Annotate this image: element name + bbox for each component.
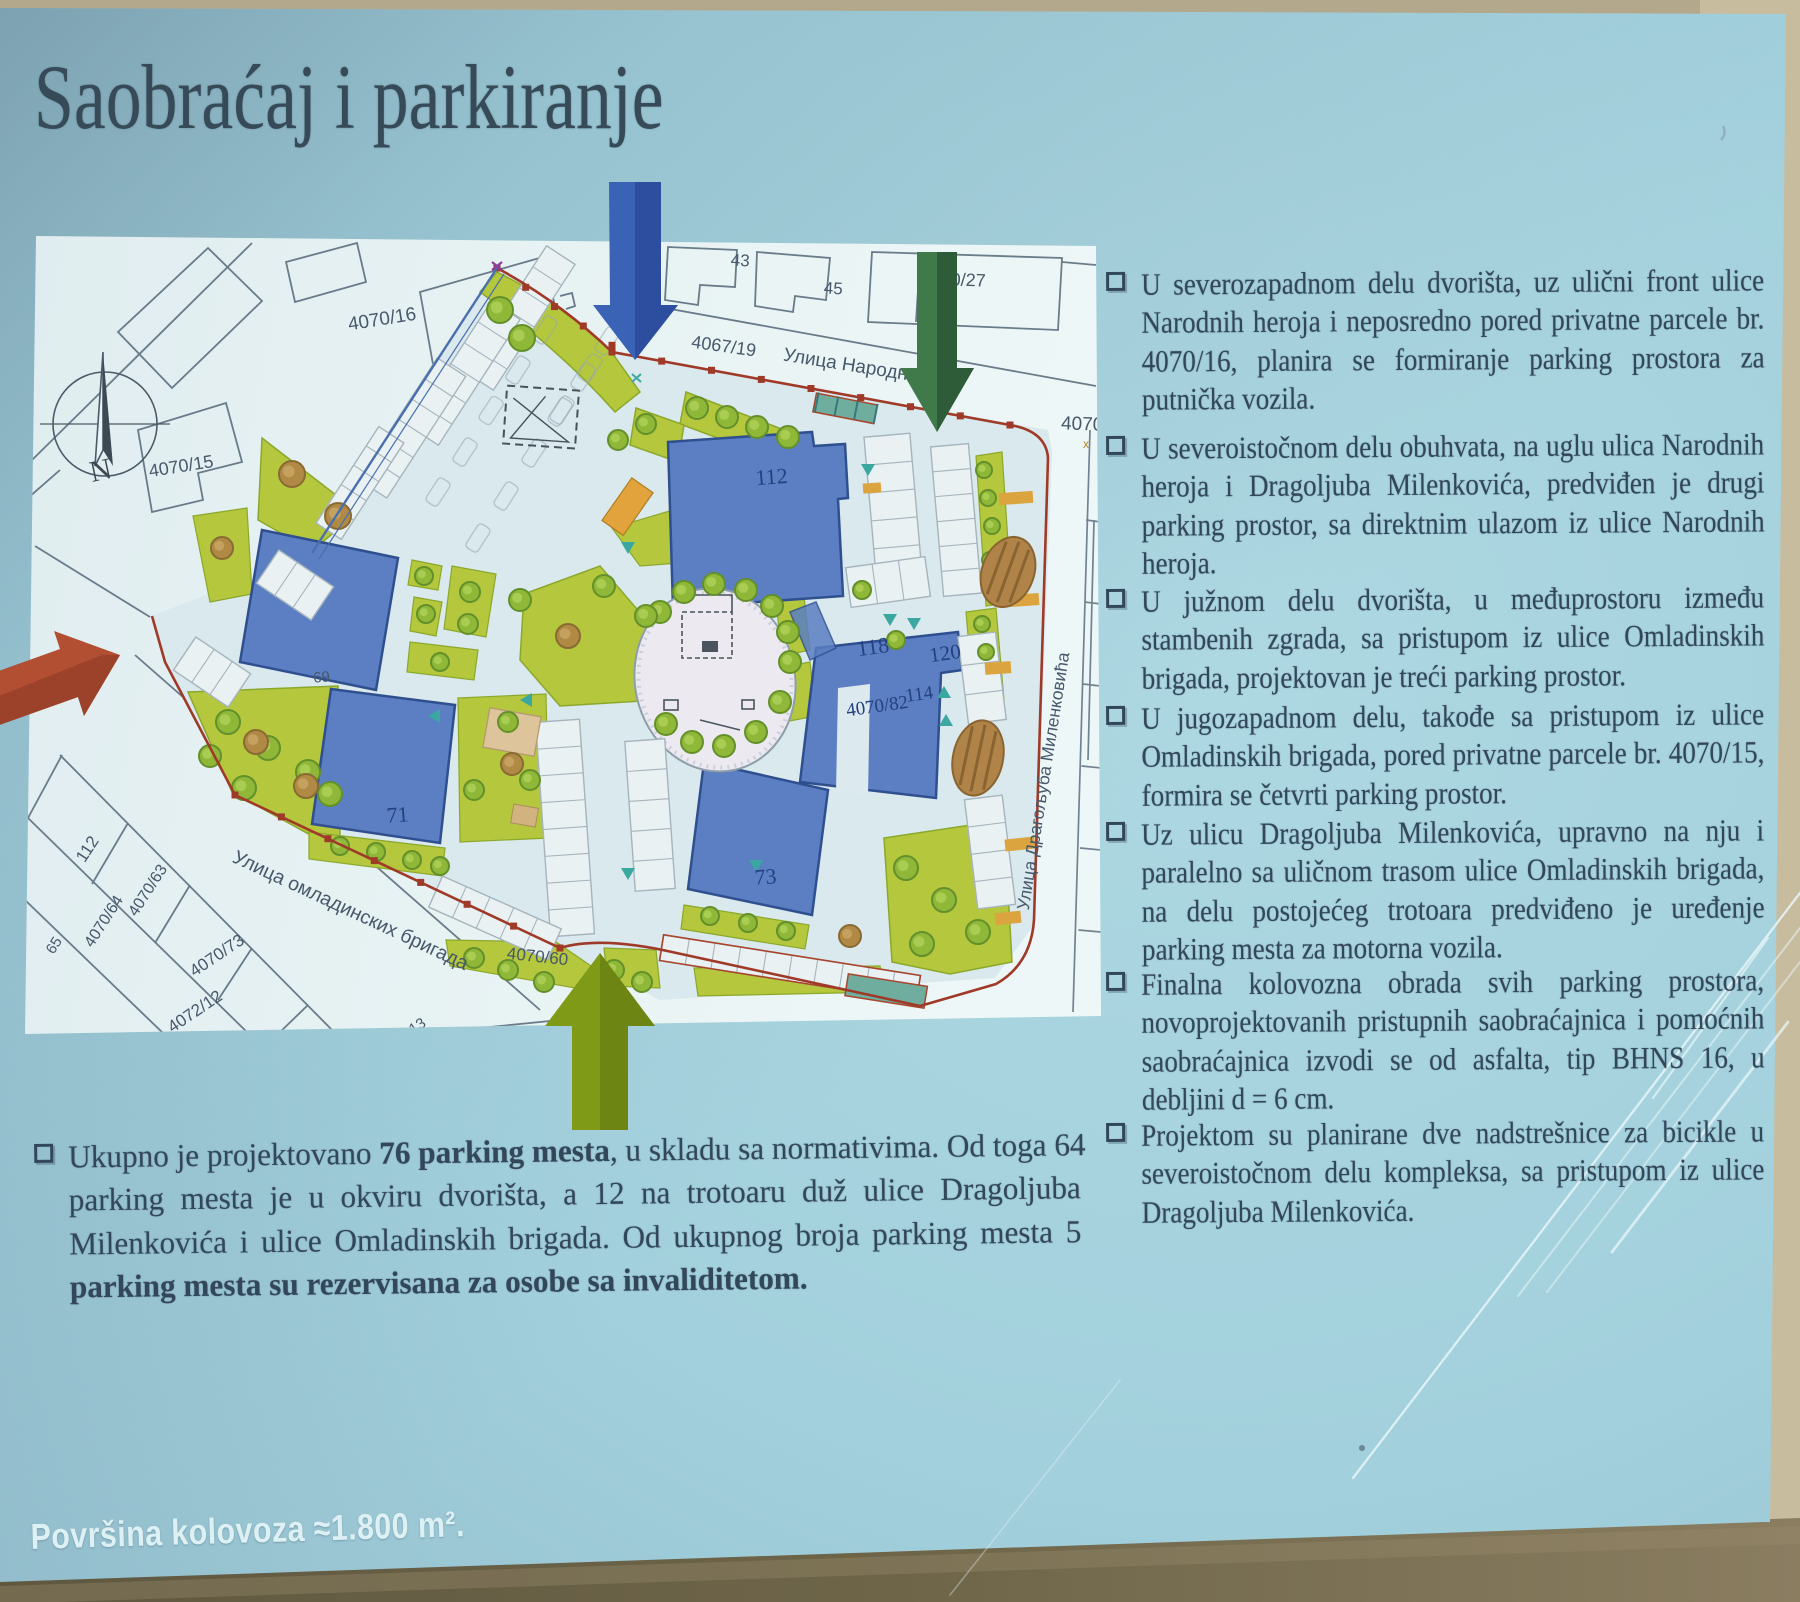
svg-text:43: 43 — [730, 251, 750, 271]
svg-text:118: 118 — [855, 632, 890, 661]
svg-text:114: 114 — [904, 682, 935, 707]
svg-text:73: 73 — [754, 863, 778, 889]
svg-text:69: 69 — [313, 668, 331, 686]
svg-text:120: 120 — [928, 639, 963, 667]
svg-text:x: x — [1083, 437, 1089, 451]
svg-text:112: 112 — [755, 463, 789, 490]
svg-text:71: 71 — [386, 801, 410, 827]
svg-text:45: 45 — [823, 279, 843, 299]
